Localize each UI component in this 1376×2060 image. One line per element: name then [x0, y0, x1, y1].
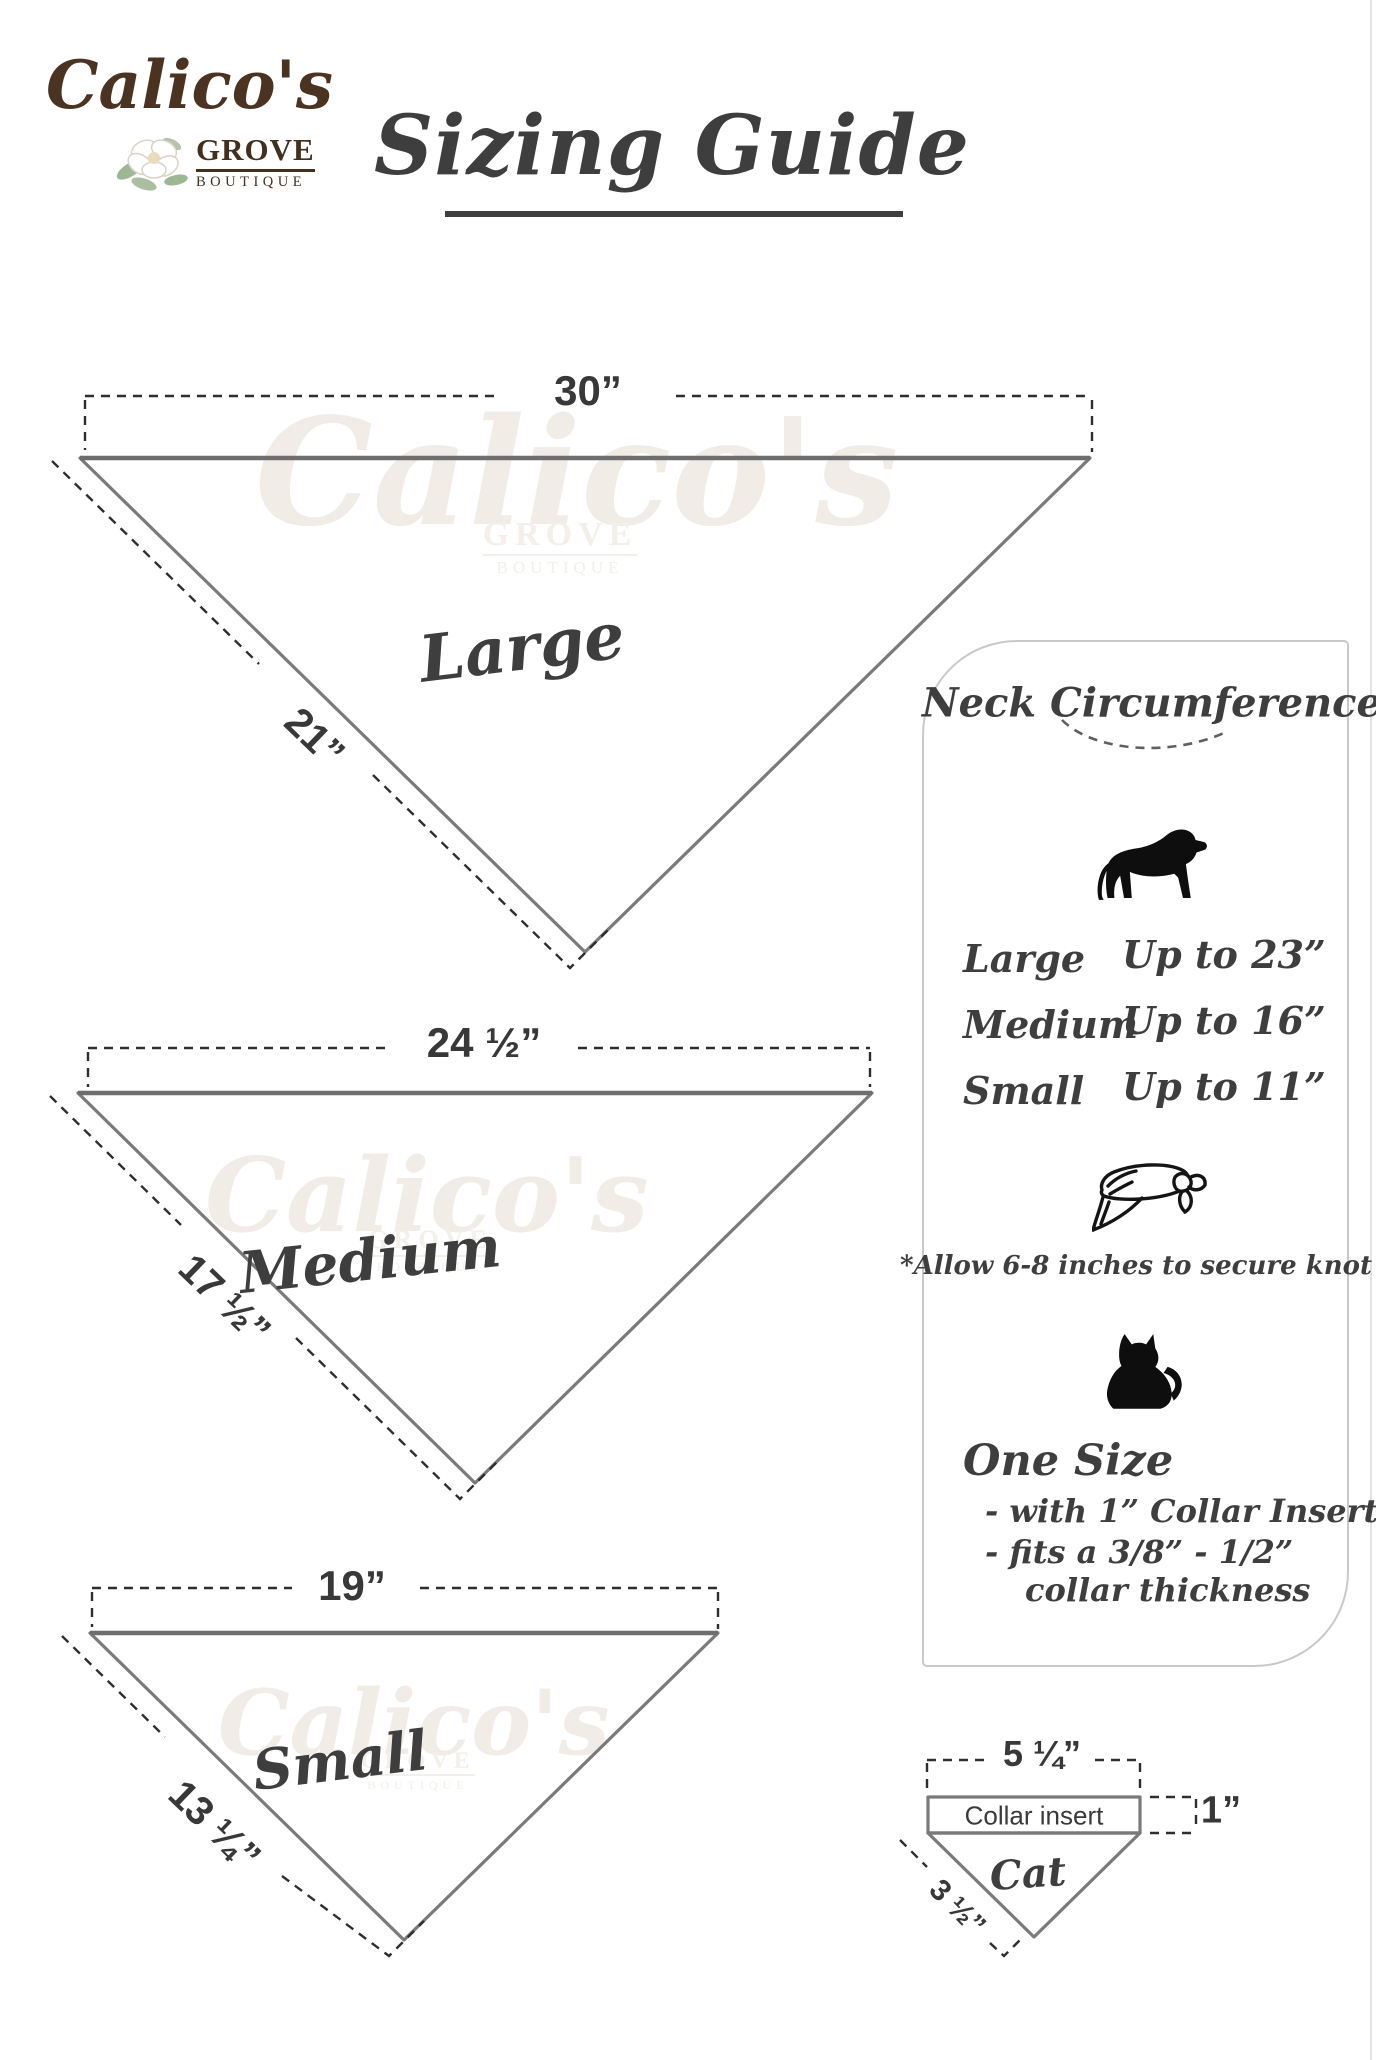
size-row-medium-label: Medium	[963, 1002, 1138, 1047]
one-size-heading: One Size	[963, 1436, 1173, 1486]
page-title: Sizing Guide	[374, 98, 970, 194]
size-row-large-label: Large	[963, 936, 1085, 981]
brand-logo: Calico's GROVE BOUTIQUE	[40, 40, 320, 200]
cat-icon	[1100, 1330, 1184, 1418]
bandana-icon	[1092, 1156, 1210, 1250]
collar-insert-label: Collar insert	[965, 1801, 1104, 1832]
logo-grove-text: GROVE	[196, 132, 315, 172]
small-top-measurement: 19”	[318, 1562, 386, 1610]
one-size-bullet-1: - with 1” Collar Insert	[985, 1492, 1376, 1530]
sizing-guide-page: Calico's GROVE BOUTIQUE Calico's GROVE B…	[0, 0, 1376, 2060]
one-size-bullet-3: collar thickness	[1025, 1571, 1310, 1609]
logo-brand-text: Calico's	[46, 46, 333, 124]
logo-boutique-text: BOUTIQUE	[196, 174, 306, 191]
panel-heading: Neck Circumference	[922, 680, 1376, 727]
size-row-large-value: Up to 23”	[1122, 932, 1326, 977]
size-row-medium-value: Up to 16”	[1122, 998, 1326, 1043]
dog-icon	[1096, 822, 1212, 914]
cat-height-measurement: 1”	[1201, 1790, 1241, 1833]
cat-label: Cat	[988, 1848, 1067, 1900]
cat-top-measurement: 5 ¼”	[1003, 1733, 1081, 1775]
flower-icon	[114, 128, 196, 194]
one-size-bullet-2: - fits a 3/8” - 1/2”	[985, 1533, 1293, 1571]
title-underline	[445, 211, 903, 217]
medium-top-measurement: 24 ½”	[427, 1019, 541, 1067]
knot-note: *Allow 6-8 inches to secure knot	[900, 1251, 1372, 1281]
size-row-small-label: Small	[963, 1068, 1084, 1113]
large-top-measurement: 30”	[554, 367, 622, 415]
size-row-small-value: Up to 11”	[1122, 1064, 1326, 1109]
